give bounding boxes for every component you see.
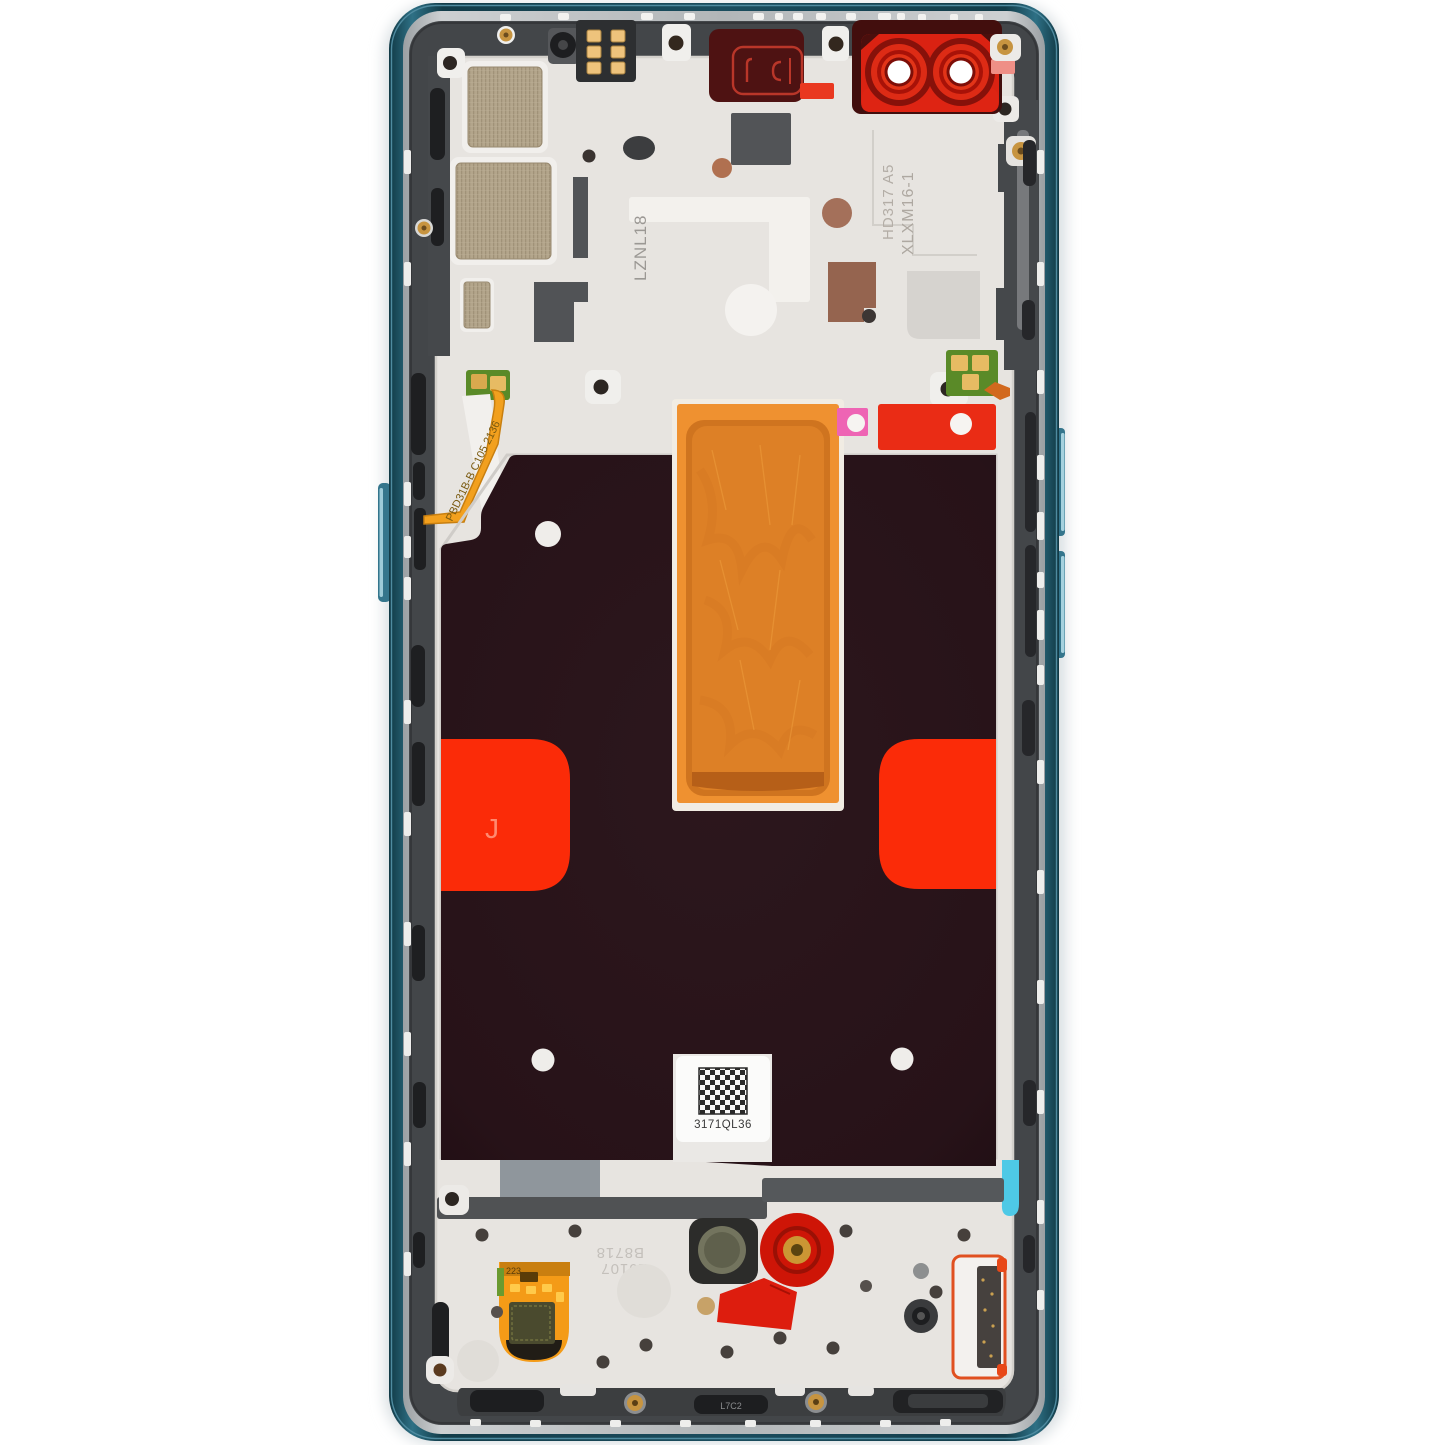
svg-text:3171QL36: 3171QL36 [694,1119,752,1131]
svg-text:LZNL18: LZNL18 [631,215,650,281]
svg-text:223: 223 [506,1266,521,1276]
svg-text:J: J [485,813,499,844]
svg-text:L7C2: L7C2 [720,1401,742,1411]
svg-text:XLXM16-1: XLXM16-1 [900,171,917,255]
svg-text:B8718: B8718 [596,1244,644,1261]
svg-text:HD317 A5: HD317 A5 [880,164,897,240]
